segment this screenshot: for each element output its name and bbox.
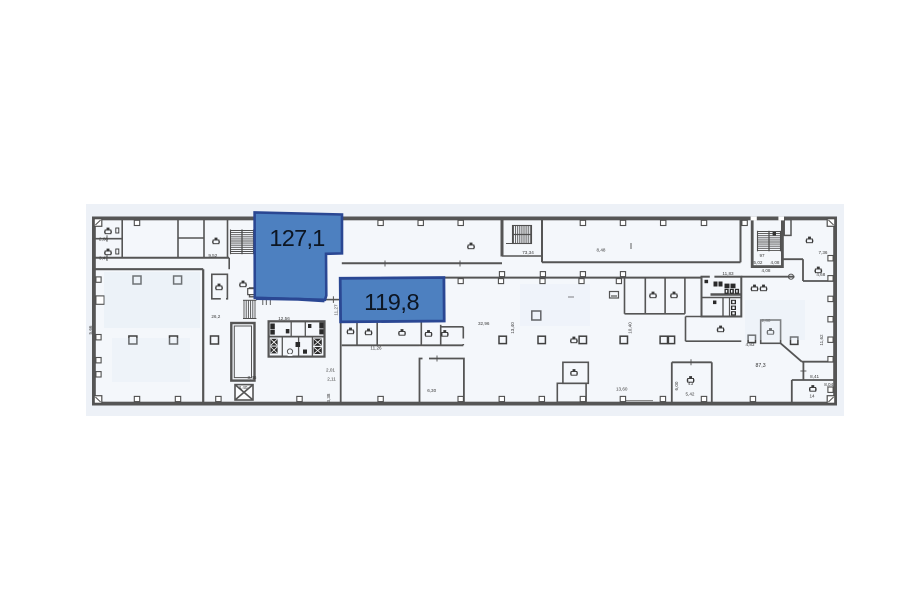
svg-text:43: 43 bbox=[688, 381, 694, 386]
svg-text:2,11: 2,11 bbox=[327, 377, 336, 382]
svg-text:11,83: 11,83 bbox=[722, 271, 734, 276]
svg-text:5,42: 5,42 bbox=[686, 392, 695, 397]
svg-text:4,83: 4,83 bbox=[746, 342, 755, 347]
svg-text:11,62: 11,62 bbox=[819, 334, 824, 346]
svg-text:7,36: 7,36 bbox=[819, 250, 828, 255]
svg-text:32,96: 32,96 bbox=[478, 321, 490, 326]
svg-text:6,00: 6,00 bbox=[674, 381, 679, 390]
svg-text:10,40: 10,40 bbox=[628, 322, 633, 334]
svg-text:13,40: 13,40 bbox=[510, 322, 515, 334]
svg-text:2,01: 2,01 bbox=[326, 368, 335, 373]
svg-text:127,1: 127,1 bbox=[269, 225, 324, 251]
svg-text:5,02: 5,02 bbox=[754, 260, 763, 265]
svg-text:8,04: 8,04 bbox=[824, 382, 833, 387]
svg-text:8,41: 8,41 bbox=[810, 374, 819, 379]
svg-text:6,30: 6,30 bbox=[427, 388, 436, 393]
svg-text:73,34: 73,34 bbox=[522, 250, 534, 255]
svg-text:3,40: 3,40 bbox=[239, 385, 248, 390]
svg-text:14: 14 bbox=[809, 394, 815, 399]
svg-text:3,46: 3,46 bbox=[248, 375, 257, 380]
svg-text:26,2: 26,2 bbox=[211, 314, 220, 319]
svg-text:11,27: 11,27 bbox=[334, 304, 339, 316]
svg-text:4,08: 4,08 bbox=[771, 260, 780, 265]
svg-text:11,26: 11,26 bbox=[370, 345, 382, 350]
svg-text:8,48: 8,48 bbox=[597, 248, 606, 253]
svg-text:13,60: 13,60 bbox=[616, 386, 628, 391]
svg-text:97: 97 bbox=[759, 253, 765, 258]
svg-text:5,66: 5,66 bbox=[88, 325, 93, 334]
svg-text:119,8: 119,8 bbox=[364, 289, 419, 315]
svg-text:9,52: 9,52 bbox=[208, 253, 217, 258]
svg-text:87,3: 87,3 bbox=[756, 363, 766, 369]
svg-text:4,68: 4,68 bbox=[816, 272, 825, 277]
svg-text:3,38: 3,38 bbox=[326, 393, 331, 402]
svg-text:4,08: 4,08 bbox=[762, 268, 771, 273]
svg-text:12,56: 12,56 bbox=[278, 316, 290, 321]
